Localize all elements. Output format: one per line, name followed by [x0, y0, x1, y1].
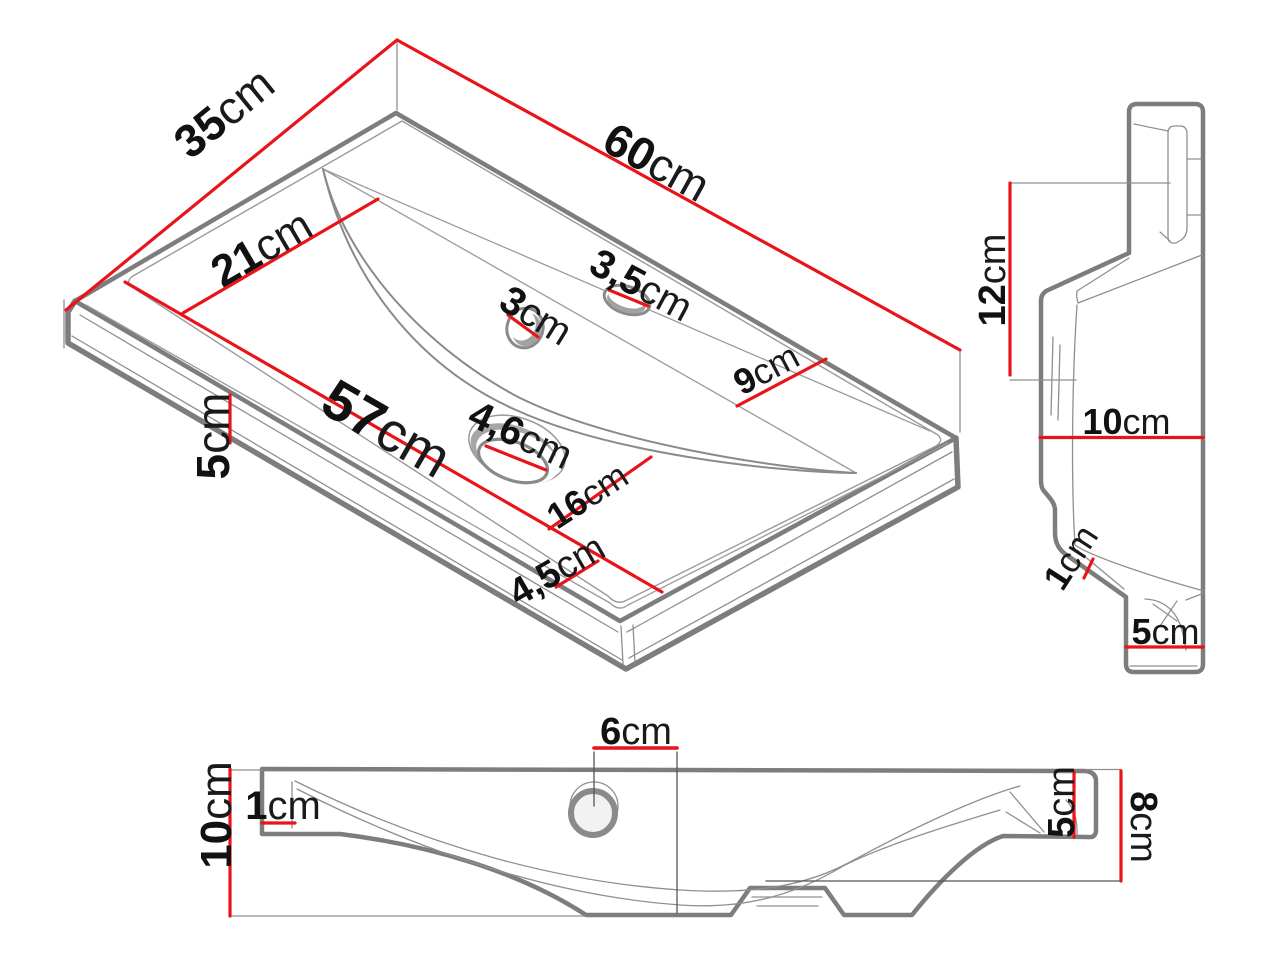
svg-text:6cm: 6cm [600, 711, 672, 753]
svg-text:5cm: 5cm [1041, 766, 1083, 838]
svg-text:60cm: 60cm [595, 112, 719, 212]
svg-text:57cm: 57cm [312, 367, 462, 490]
svg-text:4,5cm: 4,5cm [502, 527, 613, 615]
svg-text:10cm: 10cm [192, 761, 241, 869]
svg-text:5cm: 5cm [1131, 611, 1199, 652]
svg-text:5cm: 5cm [187, 393, 239, 480]
svg-text:35cm: 35cm [164, 57, 284, 168]
svg-text:10cm: 10cm [1082, 401, 1170, 442]
svg-text:8cm: 8cm [1122, 791, 1164, 863]
svg-text:12cm: 12cm [972, 234, 1014, 327]
svg-text:1cm: 1cm [1035, 517, 1106, 596]
svg-text:1cm: 1cm [245, 784, 321, 828]
